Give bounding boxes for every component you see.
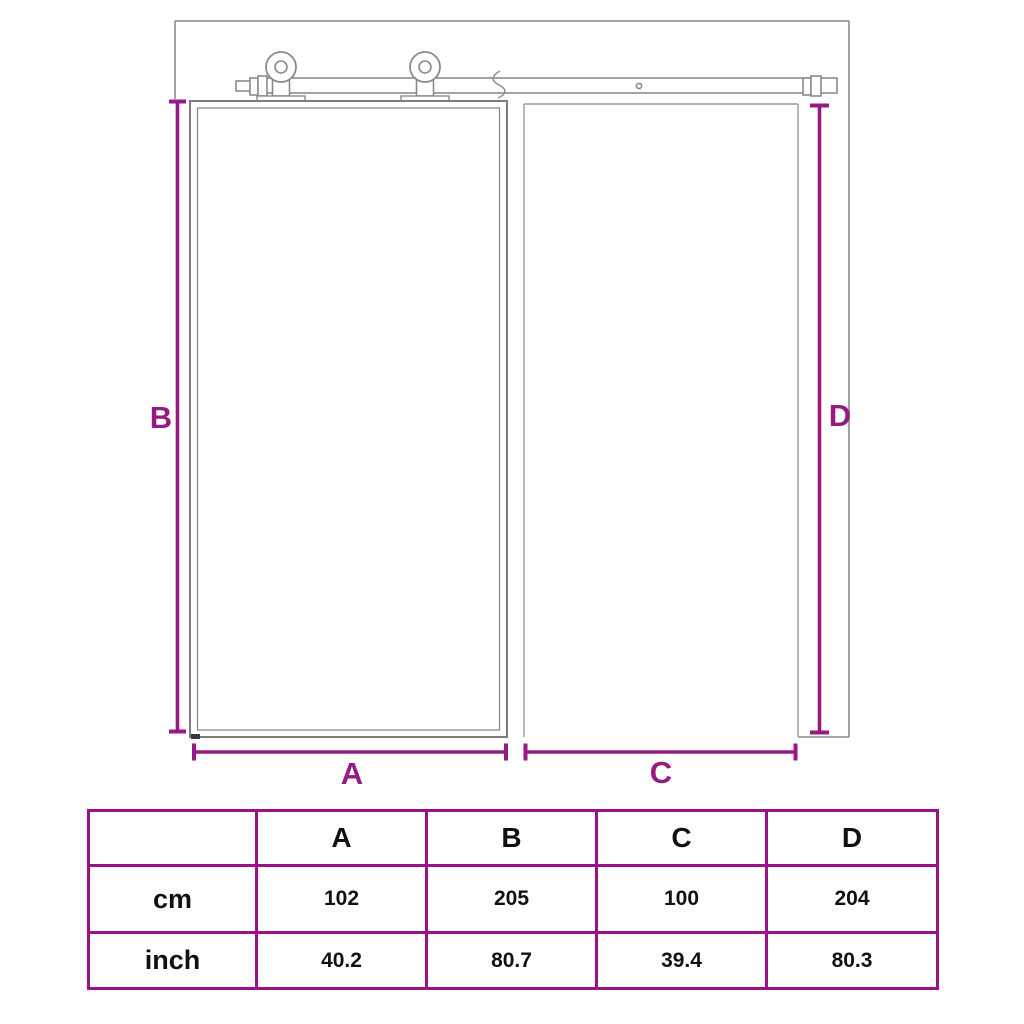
header-unit-blank: [89, 811, 257, 866]
roller-hub: [419, 61, 431, 73]
doorway-opening: [524, 104, 798, 737]
inch-value-c: 39.4: [597, 933, 767, 989]
cm-value-d: 204: [767, 866, 938, 933]
table-row-cm: cm 102 205 100 204: [89, 866, 938, 933]
cm-value-b: 205: [427, 866, 597, 933]
dimension-d: [810, 105, 829, 733]
header-c: C: [597, 811, 767, 866]
dim-b-label: B: [150, 400, 172, 435]
cm-value-c: 100: [597, 866, 767, 933]
measurements-table: A B C D cm 102 205 100 204 inch 40.2 80.…: [87, 809, 939, 990]
door-outer-edge: [190, 101, 507, 737]
rail-left-washer: [250, 78, 258, 95]
inch-value-b: 80.7: [427, 933, 597, 989]
table-header-row: A B C D: [89, 811, 938, 866]
floor-guide: [191, 734, 200, 739]
door-panel: [190, 101, 507, 739]
rail-left-bolt: [236, 81, 251, 91]
rail-right-nut: [811, 76, 821, 96]
dim-d-label: D: [829, 398, 851, 433]
roller-hanger-right: [401, 52, 449, 102]
roller-hub: [275, 61, 287, 73]
row-label-inch: inch: [89, 933, 257, 989]
product-dimension-sheet: B D A C A B: [0, 0, 1024, 1024]
sliding-rail: [236, 71, 837, 98]
header-d: D: [767, 811, 938, 866]
inch-value-d: 80.3: [767, 933, 938, 989]
header-a: A: [257, 811, 427, 866]
dim-c-label: C: [650, 755, 672, 790]
dim-a-label: A: [341, 756, 363, 791]
rail-left-nut: [258, 76, 267, 96]
cm-value-a: 102: [257, 866, 427, 933]
table-row-inch: inch 40.2 80.7 39.4 80.3: [89, 933, 938, 989]
header-b: B: [427, 811, 597, 866]
row-label-cm: cm: [89, 866, 257, 933]
sliding-door-diagram: B D A C: [0, 0, 1024, 800]
rail-bar: [266, 78, 837, 93]
rail-right-washer: [803, 78, 811, 95]
inch-value-a: 40.2: [257, 933, 427, 989]
